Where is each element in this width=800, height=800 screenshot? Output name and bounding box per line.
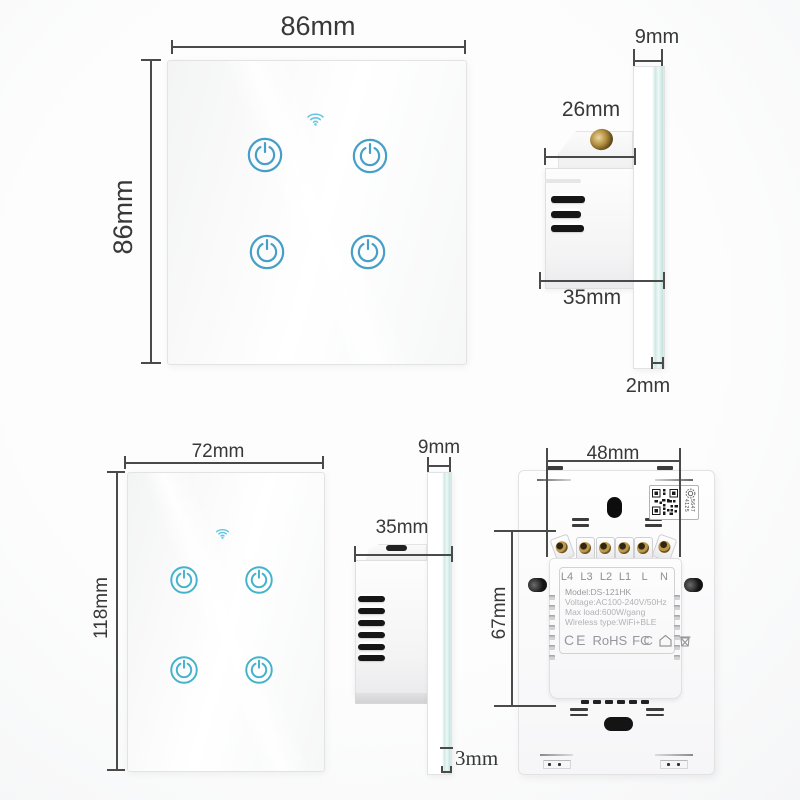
clip-mark: [549, 595, 555, 600]
vent-slot: [358, 596, 385, 602]
clip-mark: [674, 635, 680, 640]
power-button-icon: [248, 233, 286, 271]
dimension-tick: [494, 530, 556, 532]
us-side-back-box: [355, 560, 428, 695]
dimension-tick: [322, 456, 324, 469]
mold-mark: [570, 714, 588, 717]
stamp-icon: [685, 488, 696, 499]
dimension-tick: [141, 59, 161, 61]
clip-mark: [674, 655, 680, 660]
dimension-line: [545, 156, 635, 158]
dimension-label-eu-box-depth: 26mm: [551, 98, 631, 122]
power-button-icon: [244, 565, 274, 595]
mold-mark: [646, 708, 664, 711]
mold-mark: [655, 754, 693, 756]
dimension-tick: [544, 148, 546, 165]
mold-mark: [645, 524, 662, 527]
glass-edge: [442, 473, 451, 774]
dimension-line: [441, 771, 451, 773]
dimension-tick: [634, 148, 636, 165]
dimension-tick: [107, 769, 125, 771]
glass-edge: [652, 67, 664, 368]
mold-dot: [548, 763, 551, 766]
dimension-tick: [440, 747, 453, 749]
power-button-icon: [351, 137, 389, 175]
dimension-label-module-height: 67mm: [489, 568, 511, 658]
terminal-screw-icon: [637, 542, 649, 554]
vent-dash: [581, 700, 589, 704]
eu-front-glass-panel: [167, 60, 467, 365]
clip-mark: [674, 645, 680, 650]
dimension-tick: [633, 49, 635, 66]
power-button-icon: [349, 233, 387, 271]
vent-slot: [358, 644, 385, 650]
dimension-line: [511, 531, 513, 706]
box-bottom-band: [355, 693, 429, 704]
mold-mark: [655, 479, 693, 481]
dimension-label-us-glass-thickness: 3mm: [455, 746, 495, 771]
mold-mark: [657, 466, 673, 470]
dimension-label-eu-total-depth: 35mm: [552, 286, 632, 310]
dimension-line: [172, 46, 465, 48]
mold-mark: [540, 754, 573, 756]
qr-side-text: 5647 4125: [683, 499, 695, 519]
mounting-hole: [604, 717, 633, 731]
dimension-label-us-height: 118mm: [91, 553, 115, 663]
dimension-line: [355, 554, 452, 556]
dimension-line: [633, 60, 662, 62]
wifi-icon: [215, 527, 230, 539]
vent-slot: [551, 196, 585, 203]
vent-slot: [358, 608, 385, 614]
mold-dot: [558, 763, 561, 766]
terminal-screw-icon: [656, 539, 671, 554]
terminal-screw-icon: [579, 542, 591, 554]
clip-mark: [674, 625, 680, 630]
dimension-label-eu-height: 86mm: [108, 157, 136, 277]
clip-mark: [549, 615, 555, 620]
vent-dash: [593, 700, 601, 704]
mold-detail: [543, 760, 571, 769]
product-dimension-diagram: 86mm 86mm 9mm: [0, 0, 800, 800]
mold-mark: [572, 518, 589, 521]
mounting-hole: [607, 497, 622, 518]
dimension-extension-line: [679, 448, 681, 557]
clip-mark: [549, 645, 555, 650]
rohs-mark: RoHS: [592, 633, 627, 648]
dimension-tick: [451, 546, 453, 562]
clip-mark: [674, 615, 680, 620]
dimension-label-eu-glass-width: 9mm: [627, 26, 687, 49]
terminal-screw-icon: [554, 540, 569, 555]
terminal-label: N: [655, 571, 673, 583]
power-button-icon: [169, 655, 199, 685]
dimension-label-us-width: 72mm: [178, 441, 258, 463]
power-button-icon: [169, 565, 199, 595]
clip-mark: [549, 625, 555, 630]
qr-code-sticker: 5647 4125: [649, 485, 699, 520]
dimension-tick: [539, 272, 541, 289]
dimension-tick: [141, 362, 161, 364]
dimension-line: [651, 362, 663, 364]
clip-mark: [549, 635, 555, 640]
vent-dash: [629, 700, 637, 704]
power-button-icon: [244, 655, 274, 685]
dimension-tick: [661, 49, 663, 66]
spec-wireless: Wireless type:WiFi+BLE: [565, 618, 672, 628]
vent-slot: [551, 211, 581, 218]
certification-row: CE RoHS FCC: [564, 632, 692, 648]
clip-mark: [674, 605, 680, 610]
dimension-label-terminal-span: 48mm: [573, 443, 653, 465]
mold-mark: [547, 466, 563, 470]
clip-mark: [674, 595, 680, 600]
terminal-label: L: [636, 571, 654, 583]
mold-mark: [646, 714, 664, 717]
mounting-screw-slot: [528, 578, 547, 592]
us-front-glass-panel: [127, 472, 325, 772]
dimension-line: [427, 465, 450, 467]
terminal-label: L2: [597, 571, 615, 583]
mold-mark: [570, 708, 588, 711]
dimension-tick: [663, 272, 665, 289]
terminal-screw-icon: [599, 542, 611, 554]
dimension-tick: [171, 40, 173, 54]
dimension-tick: [494, 705, 556, 707]
clip-mark: [549, 655, 555, 660]
vent-dash: [641, 700, 649, 704]
dimension-extension-line: [546, 448, 548, 557]
vent-slot: [358, 620, 385, 626]
vent-dash: [605, 700, 613, 704]
spec-label-area: L4 L3 L2 L1 L N Model:DS-121HK Voltage:A…: [559, 567, 675, 654]
dimension-label-eu-glass-thickness: 2mm: [620, 375, 676, 398]
dimension-tick: [107, 471, 125, 473]
dimension-tick: [354, 546, 356, 562]
dimension-tick: [464, 40, 466, 54]
box-ledge: [545, 179, 581, 183]
terminal-label: L3: [578, 571, 596, 583]
fcc-mark: FCC: [632, 633, 653, 648]
ce-mark: CE: [564, 632, 587, 648]
mold-mark: [537, 479, 571, 481]
clip-mark: [549, 605, 555, 610]
dimension-label-eu-width: 86mm: [260, 11, 376, 42]
vent-slot: [358, 655, 385, 661]
power-button-icon: [246, 136, 284, 174]
vent-slot: [551, 225, 584, 232]
vent-slot: [358, 632, 385, 638]
mold-mark: [572, 524, 589, 527]
mold-detail: [660, 760, 688, 769]
terminal-label: L1: [616, 571, 634, 583]
qr-code: [652, 489, 678, 515]
terminal-screw-icon: [618, 542, 630, 554]
dimension-line: [116, 472, 118, 770]
dimension-label-us-depth: 35mm: [362, 517, 442, 539]
wifi-icon: [306, 111, 325, 126]
house-icon: [658, 634, 673, 647]
dimension-line: [150, 60, 152, 363]
mold-dot: [667, 763, 670, 766]
terminal-label: L4: [558, 571, 576, 583]
terminal-slot: [386, 545, 407, 551]
vent-dash: [617, 700, 625, 704]
mounting-screw-slot: [684, 578, 703, 592]
mold-dot: [677, 763, 680, 766]
dimension-label-us-glass-width: 9mm: [409, 437, 469, 459]
dimension-tick: [124, 456, 126, 469]
eu-side-panel-edge: [633, 66, 665, 369]
dimension-line: [540, 280, 664, 282]
